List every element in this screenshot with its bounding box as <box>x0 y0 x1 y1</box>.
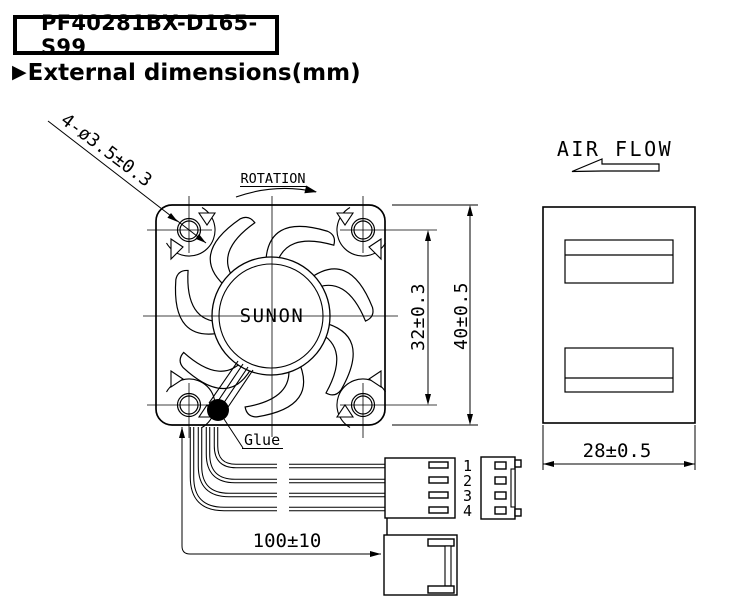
air-flow-label: AIR FLOW <box>557 137 673 161</box>
connector-pin <box>495 462 506 469</box>
connector-pin <box>495 477 506 484</box>
air-flow-indicator: AIR FLOW <box>557 137 673 172</box>
brand-text: SUNON <box>240 305 305 327</box>
callout-leader <box>48 121 206 243</box>
fan-side-view <box>543 207 695 423</box>
glue-dot <box>207 399 229 421</box>
connector-slot <box>429 462 448 468</box>
holes-callout-label: 4-ø3.5±0.3 <box>57 109 156 191</box>
connector-side-view <box>481 457 521 519</box>
glue-label: Glue <box>244 431 280 449</box>
lead-wires <box>192 427 385 509</box>
pin-label-4: 4 <box>463 502 472 520</box>
rotation-indicator: ROTATION <box>236 171 317 197</box>
rotation-label: ROTATION <box>240 171 305 187</box>
lead-length-dim-label: 100±10 <box>253 530 322 552</box>
rotation-arrow <box>236 188 316 197</box>
hole-pitch-dim-label: 32±0.3 <box>408 283 429 351</box>
connector-front-view <box>385 458 455 518</box>
connector-slot <box>429 477 448 483</box>
connector-pin <box>495 492 506 499</box>
connector-pin <box>495 507 506 514</box>
depth-dim-label: 28±0.5 <box>583 440 652 462</box>
connector-slot <box>429 507 448 513</box>
connector-bottom-view <box>384 518 457 595</box>
drawing-sheet: PF40281BX-D165-S99 ▶ External dimensions… <box>0 0 750 615</box>
connector-slot <box>429 492 448 498</box>
dimension-drawing: SUNON ROTATION 4-ø3.5±0.3 Glue <box>0 0 750 615</box>
frame-size-dim-label: 40±0.5 <box>451 282 472 350</box>
pin-labels: 1 2 3 4 <box>463 457 472 520</box>
